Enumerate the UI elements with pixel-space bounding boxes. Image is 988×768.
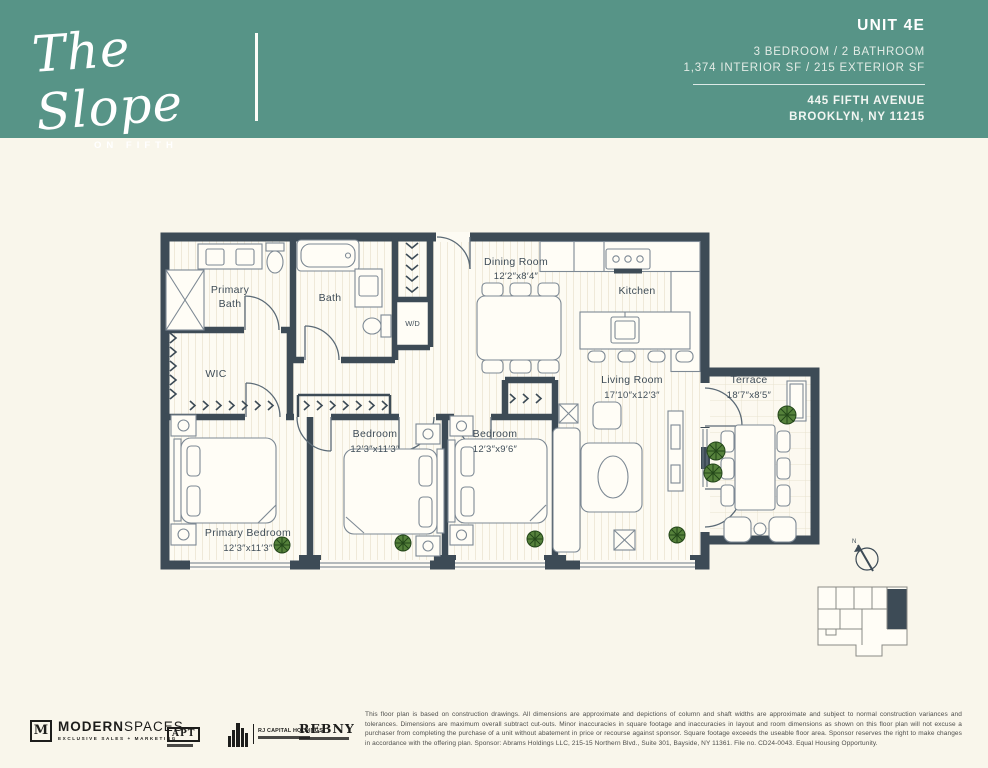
rj-capital-divider: [253, 724, 254, 744]
unit-specs-rooms: 3 BEDROOM / 2 BATHROOM: [625, 44, 925, 60]
unit-title: UNIT 4E: [625, 17, 925, 35]
north-label: N: [852, 539, 856, 545]
modern-spaces-name-bold: MODERN: [58, 719, 124, 734]
brand-divider-line: [255, 33, 258, 121]
room-label-dining: Dining Room: [484, 256, 548, 268]
room-label-bath: Bath: [319, 292, 342, 304]
header-band: The Slope ON FIFTH UNIT 4E 3 BEDROOM / 2…: [0, 0, 988, 138]
room-label-primary-bedroom: Primary Bedroom: [205, 527, 291, 539]
room-label-bedroom2: Bedroom: [353, 428, 398, 440]
room-label-wd: W/D: [405, 319, 420, 328]
room-dims-terrace: 18′7″x8′5″: [727, 390, 772, 401]
key-plan-unit-highlight: [888, 589, 907, 629]
rebny-fine-print: [299, 737, 349, 740]
address-line1: 445 FIFTH AVENUE: [625, 93, 925, 109]
address-line2: BROOKLYN, NY 11215: [625, 109, 925, 125]
room-label-wic: WIC: [205, 368, 226, 380]
disclaimer-text: This floor plan is based on construction…: [365, 710, 962, 748]
modern-spaces-name: MODERNSPACES: [58, 720, 184, 734]
modern-spaces-monogram: M: [30, 720, 52, 742]
apt-logo-fine-print: [167, 744, 193, 747]
rebny-name: REBNY: [299, 722, 355, 735]
rj-capital-building-icon: [228, 720, 249, 747]
room-dims-primary-bedroom: 12′3″x11′3″: [223, 543, 273, 554]
room-dims-bedroom2: 12′3″x11′3″: [350, 444, 400, 455]
brand-script-text: The Slope: [30, 10, 262, 141]
floor-plan-sheet: { "header": { "brand": { "script": "The …: [0, 0, 988, 768]
building-key-plan: [818, 587, 907, 656]
room-label-terrace: Terrace: [730, 374, 767, 386]
header-rule: [693, 84, 925, 85]
rebny-logo: REBNY: [299, 722, 355, 740]
brand-subtitle: ON FIFTH: [94, 140, 258, 151]
room-label-primary-bath-2: Bath: [219, 298, 242, 310]
room-label-bedroom3: Bedroom: [473, 428, 518, 440]
north-arrow-icon: N: [852, 539, 878, 571]
floor-plan-drawing: Primary Bath Bath W/D WIC Dining Room 12…: [150, 225, 940, 660]
room-dims-living: 17′10″x12′3″: [604, 390, 660, 401]
apt-logo: APT: [167, 723, 200, 747]
room-label-living: Living Room: [601, 374, 663, 386]
room-dims-dining: 12′2″x8′4″: [494, 271, 539, 282]
room-label-primary-bath-1: Primary: [211, 284, 250, 296]
apt-logo-label: APT: [167, 727, 200, 742]
brand-logo: The Slope ON FIFTH: [28, 18, 258, 128]
room-label-kitchen: Kitchen: [618, 285, 655, 297]
modern-spaces-logo: M MODERNSPACES EXCLUSIVE SALES + MARKETI…: [30, 720, 184, 742]
unit-info-block: UNIT 4E 3 BEDROOM / 2 BATHROOM 1,374 INT…: [625, 17, 925, 125]
room-dims-bedroom3: 12′3″x9′6″: [473, 444, 518, 455]
modern-spaces-tagline: EXCLUSIVE SALES + MARKETING: [58, 736, 184, 741]
unit-specs-area: 1,374 INTERIOR SF / 215 EXTERIOR SF: [625, 60, 925, 76]
floor-plan: Primary Bath Bath W/D WIC Dining Room 12…: [150, 225, 940, 660]
